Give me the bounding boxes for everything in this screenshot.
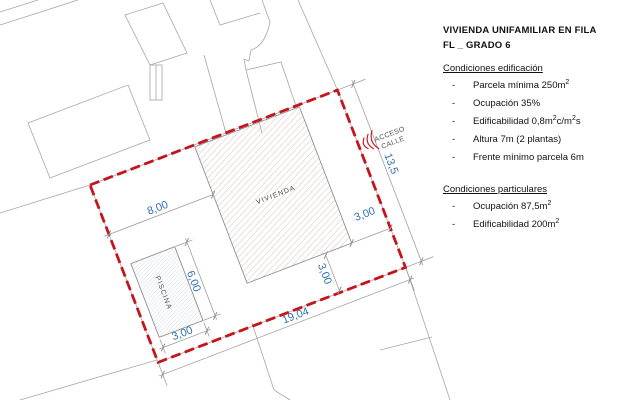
item-text: Edificabilidad 200m — [473, 219, 555, 230]
list-item: - Altura 7m (2 plantas) — [443, 134, 618, 145]
bullet-dash: - — [443, 152, 473, 163]
item-text: Ocupación 35% — [473, 98, 540, 109]
item-sup: 2 — [555, 218, 559, 225]
bullet-dash: - — [443, 219, 473, 230]
list-item: - Ocupación 87,5m2 — [443, 201, 618, 212]
dim-left-setback: 8,00 — [100, 181, 217, 239]
dim-parcel-depth: 13,5 — [337, 76, 435, 271]
item-sup: 2 — [565, 79, 569, 86]
item-text: Ocupación 87,5m — [473, 201, 547, 212]
page: 8,00 19,04 13,5 — [0, 0, 620, 400]
item-text: c/m — [557, 116, 572, 127]
section-condiciones-particulares: Condiciones particulares - Ocupación 87,… — [443, 184, 618, 230]
list-item: - Edificabilidad 200m2 — [443, 219, 618, 230]
item-text: Altura 7m (2 plantas) — [473, 134, 561, 145]
list-item: - Frente mínimo parcela 6m — [443, 152, 618, 163]
section-heading: Condiciones particulares — [443, 184, 618, 195]
dim-bottom-setback-value: 3,00 — [315, 262, 334, 286]
list-item: - Edificabilidad 0,8m2c/m2s — [443, 116, 618, 127]
item-text: Edificabilidad 0,8m — [473, 116, 553, 127]
section-heading: Condiciones edificación — [443, 63, 618, 74]
page-title: VIVIENDA UNIFAMILIAR EN FILA FL _ GRADO … — [443, 23, 618, 53]
bullet-dash: - — [443, 80, 473, 91]
dim-right-setback-value: 3,00 — [353, 205, 377, 224]
list-item: - Ocupación 35% — [443, 98, 618, 109]
info-panel: VIVIENDA UNIFAMILIAR EN FILA FL _ GRADO … — [443, 23, 618, 237]
item-sup: 2 — [547, 200, 551, 207]
title-line2: FL _ GRADO 6 — [443, 38, 618, 53]
bullet-dash: - — [443, 98, 473, 109]
dim-left-setback-value: 8,00 — [146, 199, 170, 218]
bullet-dash: - — [443, 134, 473, 145]
item-text: Parcela mínima 250m — [473, 80, 565, 91]
bullet-dash: - — [443, 201, 473, 212]
title-line1: VIVIENDA UNIFAMILIAR EN FILA — [443, 23, 618, 38]
section-condiciones-edificacion: Condiciones edificación - Parcela mínima… — [443, 63, 618, 163]
bullet-dash: - — [443, 116, 473, 127]
item-text: s — [576, 116, 581, 127]
list-item: - Parcela mínima 250m2 — [443, 80, 618, 91]
dim-bottom-setback: 3,00 — [312, 251, 344, 298]
item-text: Frente mínimo parcela 6m — [473, 152, 584, 163]
